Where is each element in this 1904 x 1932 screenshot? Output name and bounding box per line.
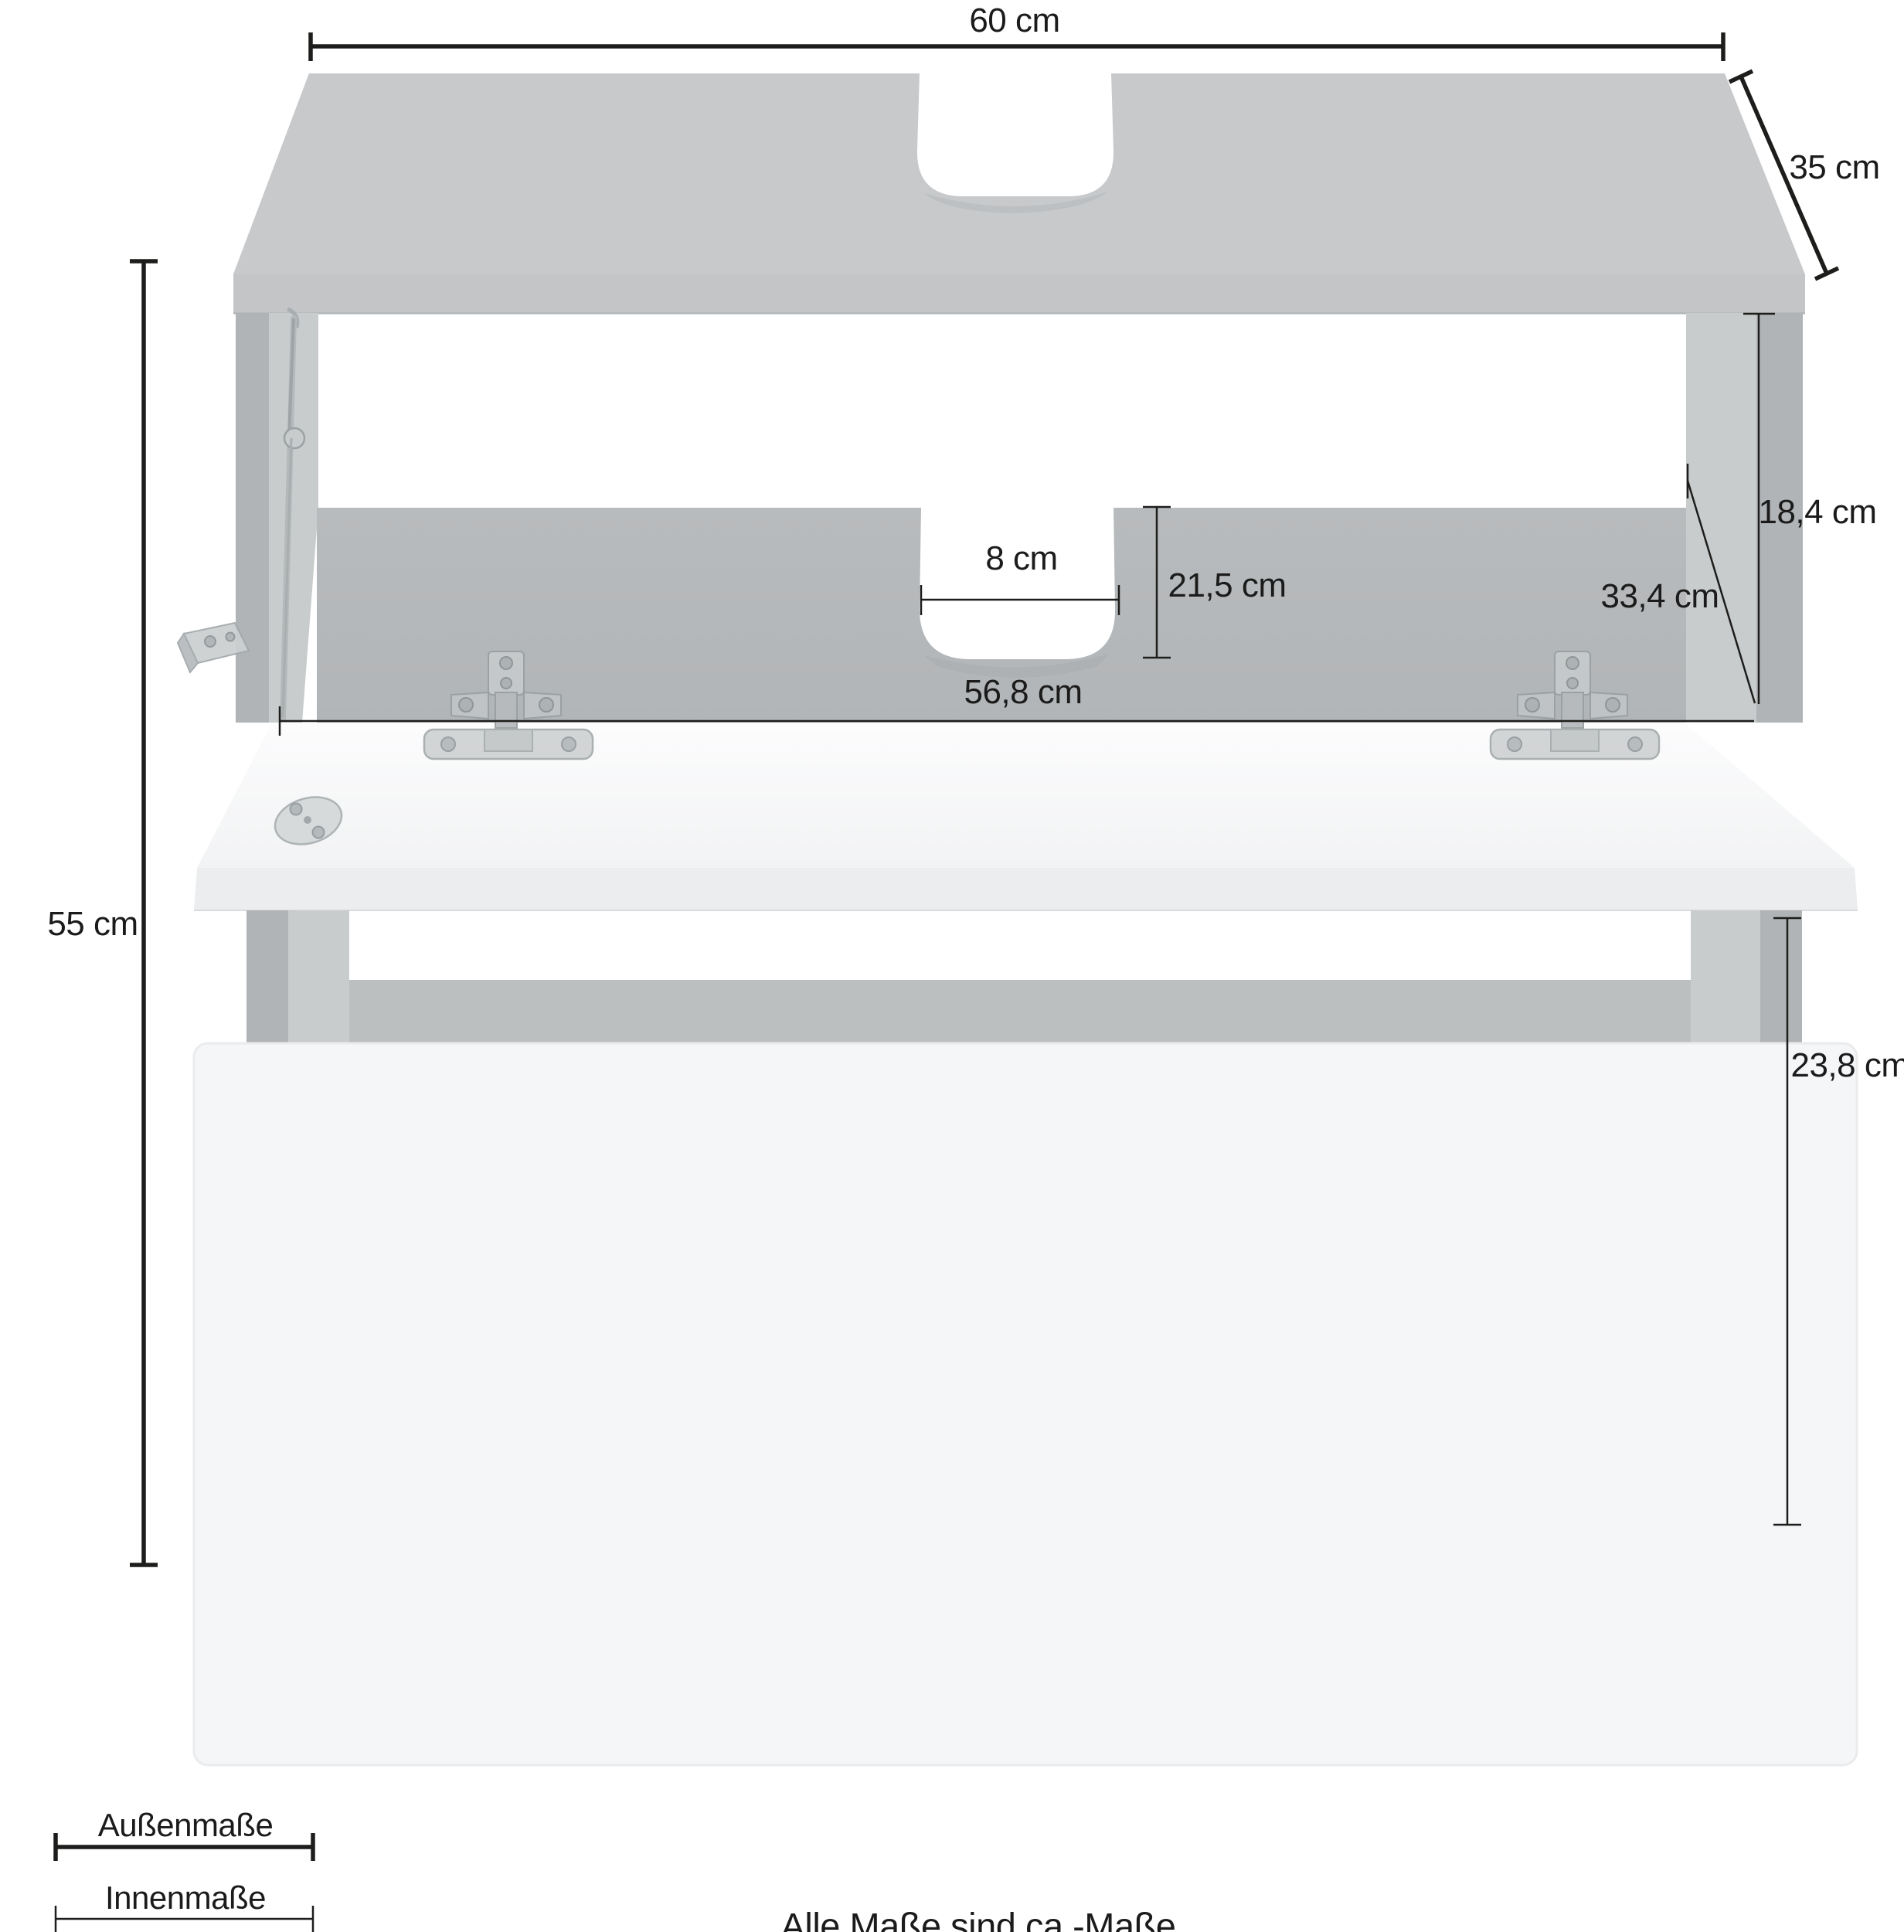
footnote: Alle Maße sind ca.-Maße <box>781 1908 1176 1932</box>
top-panel <box>233 73 1805 314</box>
product-dimension-diagram: 60 cm 35 cm 55 cm 8 cm 21,5 cm 56,8 cm 1… <box>0 0 1904 1932</box>
dim-outer-width-label: 60 cm <box>969 4 1059 38</box>
dim-cutout-depth-label: 21,5 cm <box>1168 569 1286 603</box>
dim-outer-depth-label: 35 cm <box>1789 151 1879 185</box>
lower-section-sides <box>246 910 1802 1043</box>
legend-outer-label: Außenmaße <box>98 1809 274 1842</box>
dim-drawer-height-label: 23,8 cm <box>1790 1049 1904 1083</box>
dim-outer-height-label: 55 cm <box>47 907 138 941</box>
dim-cutout-width-label: 8 cm <box>985 542 1057 576</box>
legend-inner-label: Innenmaße <box>105 1882 266 1914</box>
dim-inner-depth-label: 33,4 cm <box>1600 580 1719 614</box>
vanity-cabinet-drawing <box>0 0 1904 1932</box>
dim-inner-clearance-label: 18,4 cm <box>1758 495 1876 529</box>
drawer-front <box>194 1043 1857 1765</box>
dim-cutout-width-line <box>921 585 1119 615</box>
dim-inner-width-label: 56,8 cm <box>964 675 1082 709</box>
